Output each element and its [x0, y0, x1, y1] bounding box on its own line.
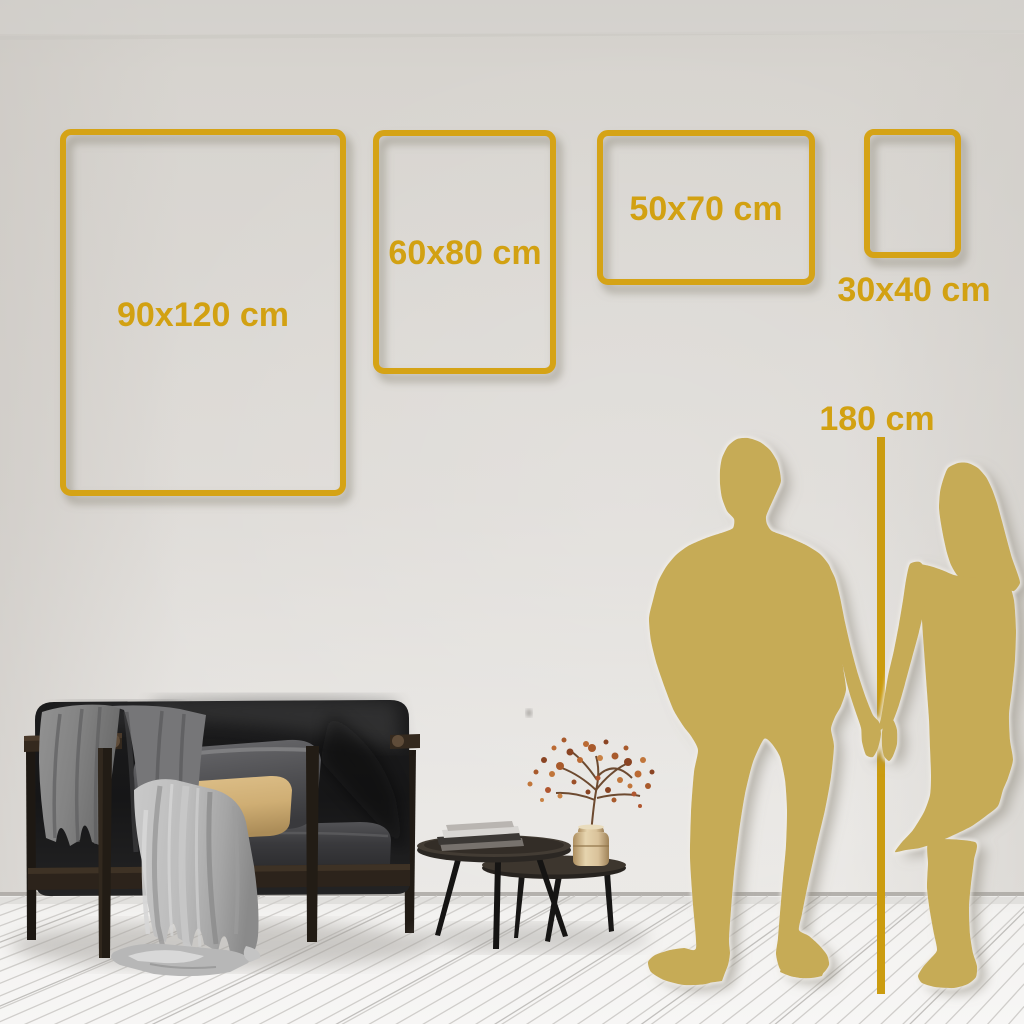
svg-text:60x80 cm: 60x80 cm [388, 234, 541, 272]
svg-text:30x40 cm: 30x40 cm [837, 271, 990, 309]
svg-text:90x120 cm: 90x120 cm [117, 296, 289, 334]
svg-text:180 cm: 180 cm [819, 400, 934, 438]
svg-text:50x70 cm: 50x70 cm [629, 190, 782, 228]
